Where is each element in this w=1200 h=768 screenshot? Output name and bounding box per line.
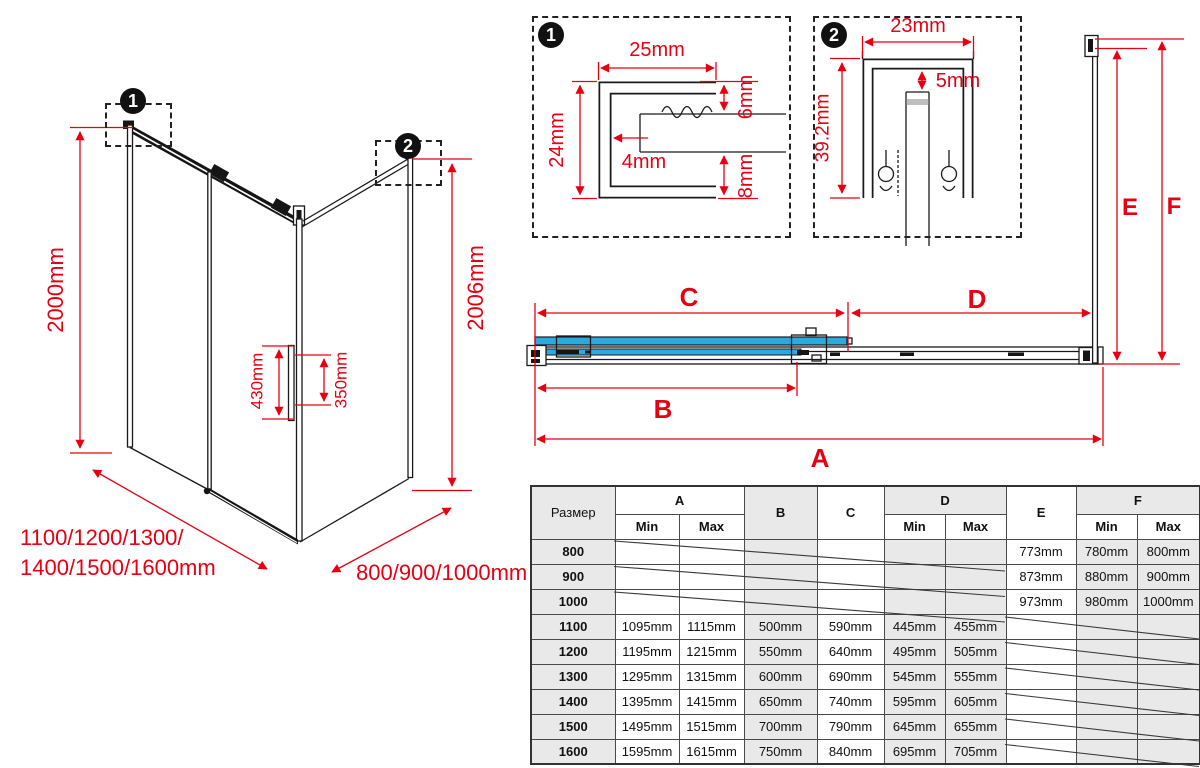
plan-dim-a-label: A	[811, 445, 830, 471]
cell-d-min: 545mm	[884, 664, 945, 689]
cell-f-min	[1076, 689, 1137, 714]
subheader-a-min: Min	[615, 514, 679, 539]
cell-e: 773mm	[1006, 539, 1076, 564]
iso-view-lines	[123, 121, 417, 545]
cell-e	[1006, 639, 1076, 664]
cell-e	[1006, 664, 1076, 689]
cell-b: 550mm	[744, 639, 817, 664]
callout-badge-2: 2	[395, 133, 421, 159]
cell-d-max: 555mm	[945, 664, 1006, 689]
cell-d-min	[884, 539, 945, 564]
cell-e	[1006, 689, 1076, 714]
subheader-d-min: Min	[884, 514, 945, 539]
table-row: 1600 1595mm 1615mm 750mm 840mm 695mm 705…	[531, 739, 1200, 764]
iso-width-options-line1: 1100/1200/1300/	[20, 527, 184, 549]
cell-d-max	[945, 589, 1006, 614]
cell-d-min: 645mm	[884, 714, 945, 739]
cell-d-min: 595mm	[884, 689, 945, 714]
cell-f-min: 780mm	[1076, 539, 1137, 564]
table-row: 900 873mm 880mm 900mm	[531, 564, 1200, 589]
cell-f-max: 800mm	[1137, 539, 1200, 564]
cell-a-max	[679, 539, 744, 564]
detail2-height-label: 39.2mm	[814, 94, 833, 163]
cell-c	[817, 564, 884, 589]
detail-box-2	[813, 16, 1022, 238]
subheader-a-max: Max	[679, 514, 744, 539]
cell-d-min	[884, 589, 945, 614]
cell-a-min: 1195mm	[615, 639, 679, 664]
detail1-top-gap-label: 6mm	[736, 75, 756, 119]
cell-c: 690mm	[817, 664, 884, 689]
cell-f-min	[1076, 664, 1137, 689]
col-header-size: Размер	[531, 486, 615, 539]
cell-a-max: 1415mm	[679, 689, 744, 714]
cell-a-max: 1115mm	[679, 614, 744, 639]
col-header-f: F	[1076, 486, 1200, 514]
cell-f-max	[1137, 639, 1200, 664]
detail2-width-label: 23mm	[890, 16, 946, 36]
cell-e	[1006, 714, 1076, 739]
cell-size: 1100	[531, 614, 615, 639]
cell-b: 500mm	[744, 614, 817, 639]
col-header-b: B	[744, 486, 817, 539]
col-header-e: E	[1006, 486, 1076, 539]
table-row: 1300 1295mm 1315mm 600mm 690mm 545mm 555…	[531, 664, 1200, 689]
cell-a-max	[679, 564, 744, 589]
plan-dim-e-label: E	[1122, 196, 1138, 220]
cell-size: 1500	[531, 714, 615, 739]
plan-dim-c-label: C	[680, 284, 699, 310]
handle-height-label: 430mm	[249, 353, 266, 410]
cell-f-max	[1137, 689, 1200, 714]
cell-size: 1000	[531, 589, 615, 614]
cell-e	[1006, 614, 1076, 639]
cell-f-min	[1076, 739, 1137, 764]
cell-c	[817, 589, 884, 614]
cell-c: 840mm	[817, 739, 884, 764]
cell-a-min: 1095mm	[615, 614, 679, 639]
cell-d-max: 655mm	[945, 714, 1006, 739]
cell-f-min	[1076, 714, 1137, 739]
detail2-badge: 2	[821, 22, 847, 48]
cell-a-max: 1315mm	[679, 664, 744, 689]
cell-size: 1600	[531, 739, 615, 764]
detail1-badge: 1	[538, 22, 564, 48]
cell-b	[744, 589, 817, 614]
cell-a-max: 1515mm	[679, 714, 744, 739]
cell-d-min: 445mm	[884, 614, 945, 639]
cell-d-max: 605mm	[945, 689, 1006, 714]
detail1-bottom-gap-label: 8mm	[736, 154, 756, 198]
cell-f-max	[1137, 714, 1200, 739]
cell-b: 750mm	[744, 739, 817, 764]
detail1-height-label: 24mm	[547, 112, 567, 168]
cell-f-min	[1076, 639, 1137, 664]
col-header-a: A	[615, 486, 744, 514]
cell-e: 973mm	[1006, 589, 1076, 614]
cell-a-min	[615, 539, 679, 564]
cell-size: 1300	[531, 664, 615, 689]
iso-width-options-line2: 1400/1500/1600mm	[20, 557, 216, 579]
cell-d-max: 455mm	[945, 614, 1006, 639]
cell-a-min	[615, 589, 679, 614]
detail1-web-label: 4mm	[622, 152, 666, 172]
cell-size: 1400	[531, 689, 615, 714]
subheader-f-min: Min	[1076, 514, 1137, 539]
detail1-width-label: 25mm	[629, 40, 685, 60]
callout-badge-1: 1	[120, 88, 146, 114]
cell-c: 790mm	[817, 714, 884, 739]
cell-a-max: 1615mm	[679, 739, 744, 764]
cell-a-min: 1395mm	[615, 689, 679, 714]
iso-side-height-label: 2006mm	[465, 245, 487, 331]
table-row: 800 773mm 780mm 800mm	[531, 539, 1200, 564]
shower-enclosure-spec-sheet: Размер A B C D E F Min Max Min Max Min M…	[0, 0, 1200, 768]
col-header-c: C	[817, 486, 884, 539]
cell-f-min: 880mm	[1076, 564, 1137, 589]
cell-d-min: 695mm	[884, 739, 945, 764]
plan-dim-b-label: B	[654, 396, 673, 422]
subheader-d-max: Max	[945, 514, 1006, 539]
iso-height-label: 2000mm	[45, 247, 67, 333]
cell-f-max	[1137, 614, 1200, 639]
detail2-gap-label: 5mm	[936, 71, 980, 91]
table-row: 1000 973mm 980mm 1000mm	[531, 589, 1200, 614]
table-row: 1500 1495mm 1515mm 700mm 790mm 645mm 655…	[531, 714, 1200, 739]
cell-f-max	[1137, 664, 1200, 689]
cell-b: 700mm	[744, 714, 817, 739]
cell-a-min: 1595mm	[615, 739, 679, 764]
cell-size: 1200	[531, 639, 615, 664]
cell-d-min	[884, 564, 945, 589]
cell-c: 640mm	[817, 639, 884, 664]
size-spec-table: Размер A B C D E F Min Max Min Max Min M…	[530, 485, 1200, 765]
col-header-d: D	[884, 486, 1006, 514]
cell-e	[1006, 739, 1076, 764]
cell-a-max	[679, 589, 744, 614]
cell-b	[744, 564, 817, 589]
cell-f-min	[1076, 614, 1137, 639]
cell-a-max: 1215mm	[679, 639, 744, 664]
cell-e: 873mm	[1006, 564, 1076, 589]
cell-b: 600mm	[744, 664, 817, 689]
cell-d-max	[945, 539, 1006, 564]
cell-b	[744, 539, 817, 564]
cell-f-max	[1137, 739, 1200, 764]
subheader-f-max: Max	[1137, 514, 1200, 539]
cell-d-max: 505mm	[945, 639, 1006, 664]
table-row: 1200 1195mm 1215mm 550mm 640mm 495mm 505…	[531, 639, 1200, 664]
cell-d-min: 495mm	[884, 639, 945, 664]
cell-d-max: 705mm	[945, 739, 1006, 764]
handle-holes-label: 350mm	[333, 352, 350, 409]
iso-depth-options: 800/900/1000mm	[356, 562, 527, 584]
cell-a-min: 1495mm	[615, 714, 679, 739]
cell-a-min	[615, 564, 679, 589]
cell-f-min: 980mm	[1076, 589, 1137, 614]
table-row: 1100 1095mm 1115mm 500mm 590mm 445mm 455…	[531, 614, 1200, 639]
cell-f-max: 900mm	[1137, 564, 1200, 589]
plan-dim-d-label: D	[968, 286, 987, 312]
table-row: 1400 1395mm 1415mm 650mm 740mm 595mm 605…	[531, 689, 1200, 714]
cell-size: 900	[531, 564, 615, 589]
cell-c: 590mm	[817, 614, 884, 639]
plan-dim-f-label: F	[1167, 195, 1182, 219]
cell-size: 800	[531, 539, 615, 564]
cell-f-max: 1000mm	[1137, 589, 1200, 614]
cell-b: 650mm	[744, 689, 817, 714]
cell-c	[817, 539, 884, 564]
iso-dimension-lines	[70, 128, 472, 573]
cell-d-max	[945, 564, 1006, 589]
cell-c: 740mm	[817, 689, 884, 714]
cell-a-min: 1295mm	[615, 664, 679, 689]
